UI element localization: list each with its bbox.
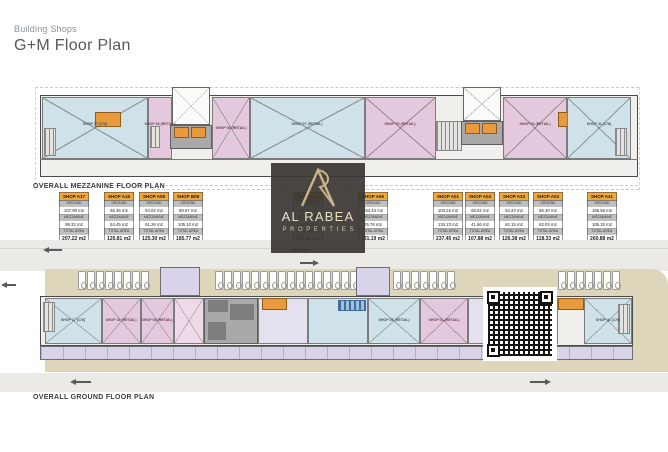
parking-stall — [305, 271, 313, 290]
entrance-lobby-1 — [160, 267, 200, 296]
mezz-elevator-shaft-1 — [172, 87, 210, 125]
parking-stall — [233, 271, 241, 290]
parking-stall — [402, 271, 410, 290]
parking-stall — [269, 271, 277, 290]
mezz-room-shop05 — [365, 97, 436, 159]
mezzanine-area-value: 134.23 m2 — [434, 221, 463, 229]
core-service-block — [208, 322, 226, 340]
qr-finder-icon — [487, 291, 500, 304]
parking-stall — [576, 271, 584, 290]
shop-name: SHOP A17 — [60, 193, 89, 201]
room-label: SHOP 08 (RETAIL) — [215, 126, 246, 130]
ground-floor-plan: SHOP 17 (176) SHOP 16 (RETAIL) SHOP 08 (… — [0, 240, 668, 392]
mezz-room-shop17 — [42, 97, 148, 159]
mezzanine-area-value: 41.86 m2 — [466, 221, 495, 229]
mezzanine-area-value: 99.32 m2 — [60, 221, 89, 229]
parking-stall — [287, 271, 295, 290]
parking-stall — [420, 271, 428, 290]
qr-finder-icon — [540, 291, 553, 304]
shop-area-table: SHOP A41 GROUND 155.56 m2 MEZZANINE 105.… — [587, 192, 617, 243]
qr-finder-icon — [487, 344, 500, 357]
page-subtitle: Building Shops — [14, 24, 77, 34]
ground-area-value: 64.04 m2 — [140, 207, 169, 215]
room-label: SHOP 41 (176) — [596, 318, 620, 322]
room-label: SHOP 08 (RETAIL) — [141, 318, 172, 322]
room-label: SHOP 17 (176) — [61, 318, 85, 322]
mezz-stair-shop16 — [150, 126, 160, 148]
brand-tagline: PROPERTIES — [279, 227, 357, 233]
shop-name: SHOP A16 — [105, 193, 134, 201]
room-label: SHOP 07 (RETAIL) — [291, 122, 322, 126]
parking-stall — [105, 271, 113, 290]
mezzanine-caption: OVERALL MEZZANINE FLOOR PLAN — [33, 183, 165, 190]
parking-stall — [242, 271, 250, 290]
shop-area-table: SHOP A01 GROUND 103.22 m2 MEZZANINE 134.… — [433, 192, 463, 243]
ground-caption: OVERALL GROUND FLOOR PLAN — [33, 394, 154, 401]
parking-stall — [78, 271, 86, 290]
ground-room-small — [174, 298, 204, 344]
traffic-arrow — [300, 262, 314, 264]
parking-stall — [411, 271, 419, 290]
mezz-lift-car-1b — [191, 127, 206, 138]
parking-stall — [251, 271, 259, 290]
mezz-stair-right — [615, 128, 627, 156]
parking-stall — [323, 271, 331, 290]
mezzanine-area-value: 62.15 m2 — [500, 221, 529, 229]
ground-area-value: 103.22 m2 — [434, 207, 463, 215]
shop-name: SHOP A08 — [140, 193, 169, 201]
parking-stall — [429, 271, 437, 290]
parking-stall — [114, 271, 122, 290]
shop-area-table: SHOP B08 GROUND 80.67 m2 MEZZANINE 105.1… — [173, 192, 203, 243]
parking-stall — [96, 271, 104, 290]
parking-stall — [296, 271, 304, 290]
room-label: SHOP 16 (RETAIL) — [105, 318, 136, 322]
brand-watermark: AL RABEA PROPERTIES — [271, 163, 365, 253]
mezz-stair-left — [44, 128, 56, 156]
road-bottom — [0, 373, 668, 392]
qr-code — [483, 287, 557, 361]
shop-name: SHOP A33 — [500, 193, 529, 201]
page-title: G+M Floor Plan — [14, 37, 131, 55]
shop-name: SHOP A01 — [434, 193, 463, 201]
shop-name: SHOP A03 — [534, 193, 563, 201]
mezz-stair-mid — [436, 121, 462, 151]
parking-stall — [123, 271, 131, 290]
room-label: SHOP 05 (RETAIL) — [384, 122, 415, 126]
traffic-arrow — [48, 249, 62, 251]
ground-area-value: 56.30 m2 — [534, 207, 563, 215]
ground-area-value: 80.67 m2 — [174, 207, 203, 215]
parking-stall — [278, 271, 286, 290]
traffic-arrow — [6, 284, 16, 286]
mezz-room-shop07 — [250, 97, 365, 159]
mezz-lift-car-1a — [174, 127, 189, 138]
parking-stall — [393, 271, 401, 290]
mezzanine-area-value: 54.45 m2 — [105, 221, 134, 229]
room-label: SHOP 41 (176) — [587, 122, 611, 126]
mezz-elevator-shaft-2 — [463, 87, 501, 121]
mezz-room-shop04 — [503, 97, 567, 159]
wc-fixtures — [338, 300, 366, 311]
mezzanine-area-value: 61.26 m2 — [140, 221, 169, 229]
shop-area-table: SHOP A16 GROUND 66.36 m2 MEZZANINE 54.45… — [104, 192, 134, 243]
mezz-corridor-line — [40, 159, 638, 160]
room-label: SHOP 16 (RETAIL) — [144, 122, 175, 126]
shop-area-table: SHOP A08 GROUND 64.04 m2 MEZZANINE 61.26… — [139, 192, 169, 243]
parking-stall — [567, 271, 575, 290]
parking-stall — [141, 271, 149, 290]
parking-stall — [438, 271, 446, 290]
parking-stall — [341, 271, 349, 290]
ground-mech-unit-2 — [558, 298, 584, 310]
parking-stall — [603, 271, 611, 290]
ground-area-value: 107.90 m2 — [60, 207, 89, 215]
ground-area-value: 66.02 m2 — [466, 207, 495, 215]
ground-mech-unit-1 — [262, 298, 287, 310]
mezz-lift-car-2b — [482, 123, 497, 134]
ground-area-value: 64.23 m2 — [500, 207, 529, 215]
mezz-lift-car-2a — [465, 123, 480, 134]
room-label: SHOP 04 (RETAIL) — [519, 122, 550, 126]
core-stair-block — [208, 300, 228, 312]
entrance-lobby-2 — [356, 267, 390, 296]
ground-stair-left — [43, 302, 55, 332]
shop-area-table: SHOP A04 GROUND 66.02 m2 MEZZANINE 41.86… — [465, 192, 495, 243]
mezzanine-area-value: 62.03 m2 — [534, 221, 563, 229]
shop-area-table: SHOP A17 GROUND 107.90 m2 MEZZANINE 99.3… — [59, 192, 89, 243]
parking-stall — [447, 271, 455, 290]
qr-pattern — [488, 292, 552, 356]
parking-stall — [260, 271, 268, 290]
shop-name: SHOP A41 — [588, 193, 617, 201]
room-label: SHOP 01 (RETAIL) — [428, 318, 459, 322]
parking-stall — [558, 271, 566, 290]
shop-name: SHOP B08 — [174, 193, 203, 201]
mezzanine-area-value: 105.32 m2 — [588, 221, 617, 229]
parking-stall — [612, 271, 620, 290]
shop-name: SHOP A04 — [466, 193, 495, 201]
ground-area-value: 66.36 m2 — [105, 207, 134, 215]
parking-stall — [314, 271, 322, 290]
parking-stall — [87, 271, 95, 290]
traffic-arrow — [75, 381, 91, 383]
parking-stall — [594, 271, 602, 290]
core-lift-block — [230, 304, 254, 320]
room-label: SHOP 17 (176) — [83, 122, 107, 126]
brand-name: AL RABEA — [282, 209, 355, 224]
mezzanine-area-value: 105.10 m2 — [174, 221, 203, 229]
ground-area-value: 155.56 m2 — [588, 207, 617, 215]
parking-stall — [224, 271, 232, 290]
traffic-arrow — [530, 381, 546, 383]
parking-stall — [332, 271, 340, 290]
shop-area-table: SHOP A03 GROUND 56.30 m2 MEZZANINE 62.03… — [533, 192, 563, 243]
shop-area-table: SHOP A33 GROUND 64.23 m2 MEZZANINE 62.15… — [499, 192, 529, 243]
room-label: SHOP 06 (RETAIL) — [378, 318, 409, 322]
parking-stall — [215, 271, 223, 290]
parking-stall — [585, 271, 593, 290]
floor-plan-sheet: Building Shops G+M Floor Plan SHOP 17 — [0, 0, 668, 452]
ar-monogram-icon — [296, 168, 340, 208]
parking-stall — [132, 271, 140, 290]
